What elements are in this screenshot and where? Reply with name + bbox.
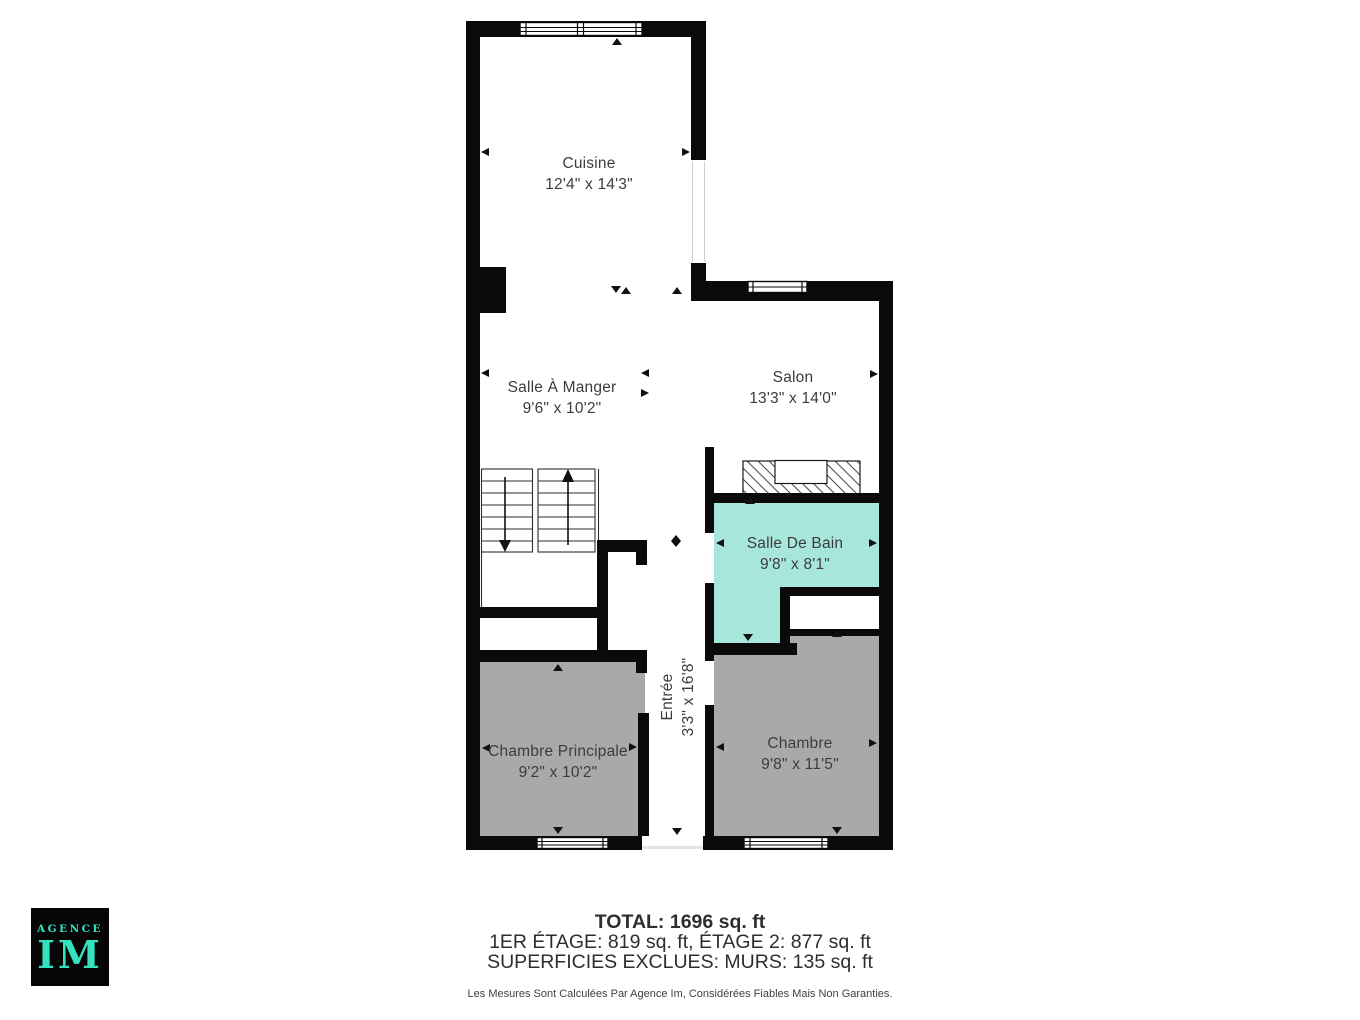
window-icon-salon [748, 282, 807, 293]
room-label-salon: Salon 13'3" x 14'0" [749, 367, 837, 409]
wall-left-chase [466, 267, 506, 313]
summary-block: TOTAL: 1696 sq. ft 1ER ÉTAGE: 819 sq. ft… [0, 912, 1360, 1001]
room-name: Salle De Bain [747, 533, 844, 554]
room-name: Chambre [761, 733, 839, 754]
agency-logo: AGENCE IM [31, 908, 109, 986]
room-name: Cuisine [545, 153, 633, 174]
wall-master-bedroom-top [475, 650, 647, 662]
room-dims: 9'8" x 11'5" [761, 754, 839, 775]
room-dims: 9'8" x 8'1" [747, 554, 844, 575]
room-name: Chambre Principale [488, 741, 628, 762]
wall-right [879, 281, 893, 850]
wall-stair-closet-vertical [597, 540, 608, 662]
wall-corridor-right-a [705, 447, 714, 533]
excluded-areas-text: SUPERFICIES EXCLUES: MURS: 135 sq. ft [0, 952, 1360, 972]
wall-stair-closet-nub-bottom [636, 650, 647, 673]
window-icon-master-bedroom [537, 838, 608, 849]
room-label-salle-a-manger: Salle À Manger 9'6" x 10'2" [508, 377, 617, 419]
window-icon-bedroom [744, 838, 828, 849]
wall-corridor-right-c [705, 705, 714, 845]
room-name: Entrée [657, 658, 678, 737]
room-label-chambre-principale: Chambre Principale 9'2" x 10'2" [488, 741, 628, 783]
wall-understair [470, 607, 597, 618]
room-label-entree: Entrée 3'3" x 16'8" [657, 658, 699, 737]
room-name: Salon [749, 367, 837, 388]
room-dims: 9'2" x 10'2" [488, 762, 628, 783]
wall-stair-closet-nub-top [636, 540, 647, 565]
room-label-chambre: Chambre 9'8" x 11'5" [761, 733, 839, 775]
room-name: Salle À Manger [508, 377, 617, 398]
wall-kitchen-right-upper [691, 21, 706, 160]
entry-opening [642, 836, 703, 850]
wall-corridor-left-lower [638, 713, 649, 845]
agency-logo-initials: IM [31, 936, 109, 974]
disclaimer-text: Les Mesures Sont Calculées Par Agence Im… [0, 988, 1360, 1001]
wall-bathroom-top [705, 493, 879, 503]
opening-edges [693, 161, 705, 262]
wall-left [466, 21, 480, 850]
room-dims: 9'6" x 10'2" [508, 398, 617, 419]
room-label-cuisine: Cuisine 12'4" x 14'3" [545, 153, 633, 195]
floorplan-drawing [0, 0, 1360, 1020]
floor-areas-text: 1ER ÉTAGE: 819 sq. ft, ÉTAGE 2: 877 sq. … [0, 932, 1360, 952]
floorplan-page: Cuisine 12'4" x 14'3" Salle À Manger 9'6… [0, 0, 1360, 1020]
wall-bathroom-leg-bottom [705, 643, 797, 655]
room-dims: 13'3" x 14'0" [749, 388, 837, 409]
room-dims: 3'3" x 16'8" [678, 658, 699, 737]
wall-closet-top [780, 587, 879, 596]
total-area-text: TOTAL: 1696 sq. ft [0, 912, 1360, 932]
staircase-icon [482, 469, 599, 607]
room-label-salle-de-bain: Salle De Bain 9'8" x 8'1" [747, 533, 844, 575]
window-icon-kitchen [520, 23, 642, 36]
fireplace-icon [743, 461, 860, 495]
room-dims: 12'4" x 14'3" [545, 174, 633, 195]
